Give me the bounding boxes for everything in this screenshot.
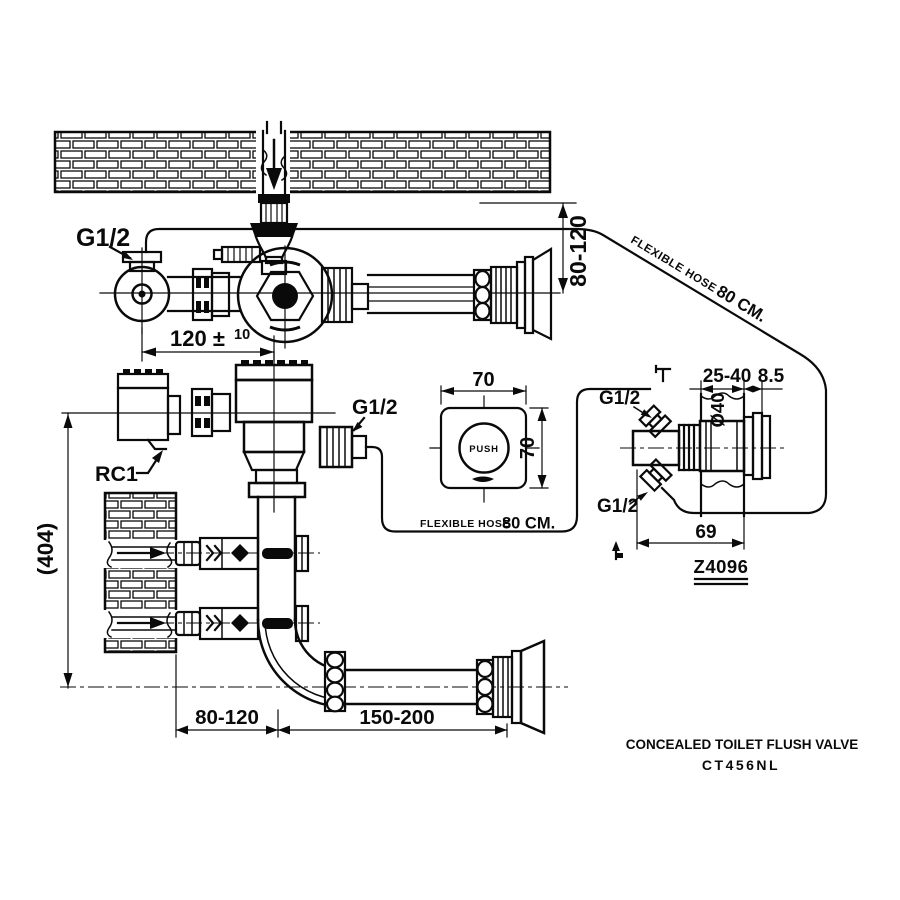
stop-valve-code-label: RC1 xyxy=(95,462,138,486)
supply-thread-label: G1/2 xyxy=(76,224,130,252)
inlet-top-thread-label: G1/2 xyxy=(599,388,640,409)
product-code: CT456NL xyxy=(702,757,780,773)
dim-plate-height-label: 70 xyxy=(517,437,539,459)
valve-outlet-thread-label: G1/2 xyxy=(352,396,398,419)
dim-outlet-reach-label: 150-200 xyxy=(359,706,434,729)
top-wall-section xyxy=(55,129,550,194)
dim-valve-spacing-tol: 10 xyxy=(234,327,250,343)
spud-code-callout: Z4096 xyxy=(694,556,749,584)
dim-valve-spacing-label: 120 ± xyxy=(170,326,225,351)
flush-valve-installation-drawing: 80-120 FLEXIBLE HOSE 80 CM. G1/2 120 ± 1… xyxy=(0,0,900,900)
hose-lower-label: FLEXIBLE HOSE xyxy=(420,518,510,530)
dim-floor-offset-label: 80-120 xyxy=(195,706,259,729)
dim-overall-height-label: (404) xyxy=(33,523,58,576)
dim-sleeve-depth-label: 69 xyxy=(695,522,716,543)
lower-wall-section xyxy=(103,493,178,652)
dim-wall-to-valve-label: 80-120 xyxy=(565,215,591,287)
push-button-label: PUSH xyxy=(469,444,499,455)
dim-flange-lip-label: 8.5 xyxy=(758,366,785,387)
dim-plate-width-label: 70 xyxy=(472,369,494,391)
inlet-bottom-thread-label: G1/2 xyxy=(597,496,638,517)
spud-code-label: Z4096 xyxy=(694,556,749,577)
product-title: CONCEALED TOILET FLUSH VALVE xyxy=(626,737,859,752)
hose-lower-length: 80 CM. xyxy=(502,515,555,533)
dim-sleeve-diameter-label: Ø40 xyxy=(707,393,728,428)
dim-wall-thickness-label: 25-40 xyxy=(703,366,752,387)
